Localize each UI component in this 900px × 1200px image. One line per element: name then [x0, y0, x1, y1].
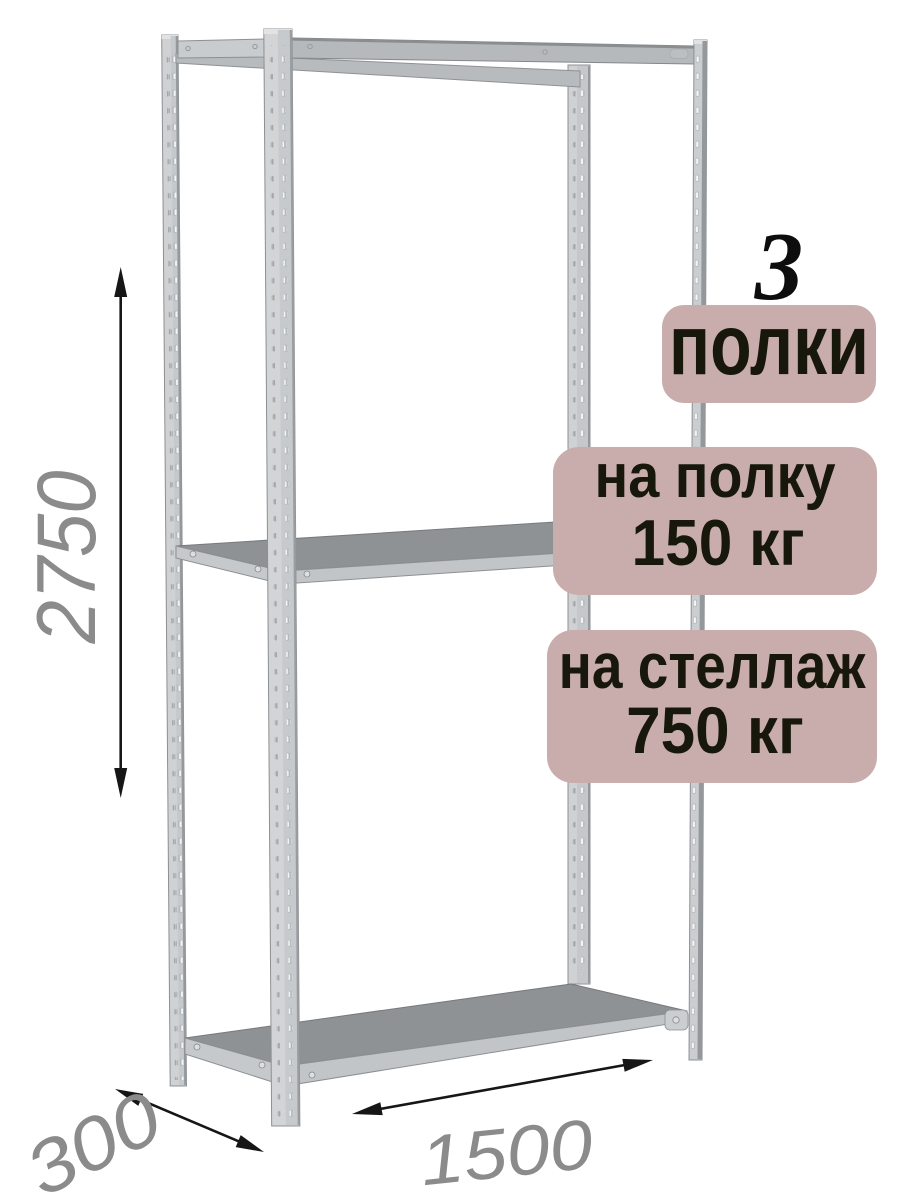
svg-text:150 кг: 150 кг [631, 507, 804, 579]
svg-text:750 кг: 750 кг [626, 693, 804, 767]
svg-text:2750: 2750 [20, 471, 113, 645]
svg-text:на полку: на полку [595, 442, 836, 510]
svg-text:на стеллаж: на стеллаж [559, 630, 866, 702]
svg-text:полки: полки [669, 298, 869, 393]
